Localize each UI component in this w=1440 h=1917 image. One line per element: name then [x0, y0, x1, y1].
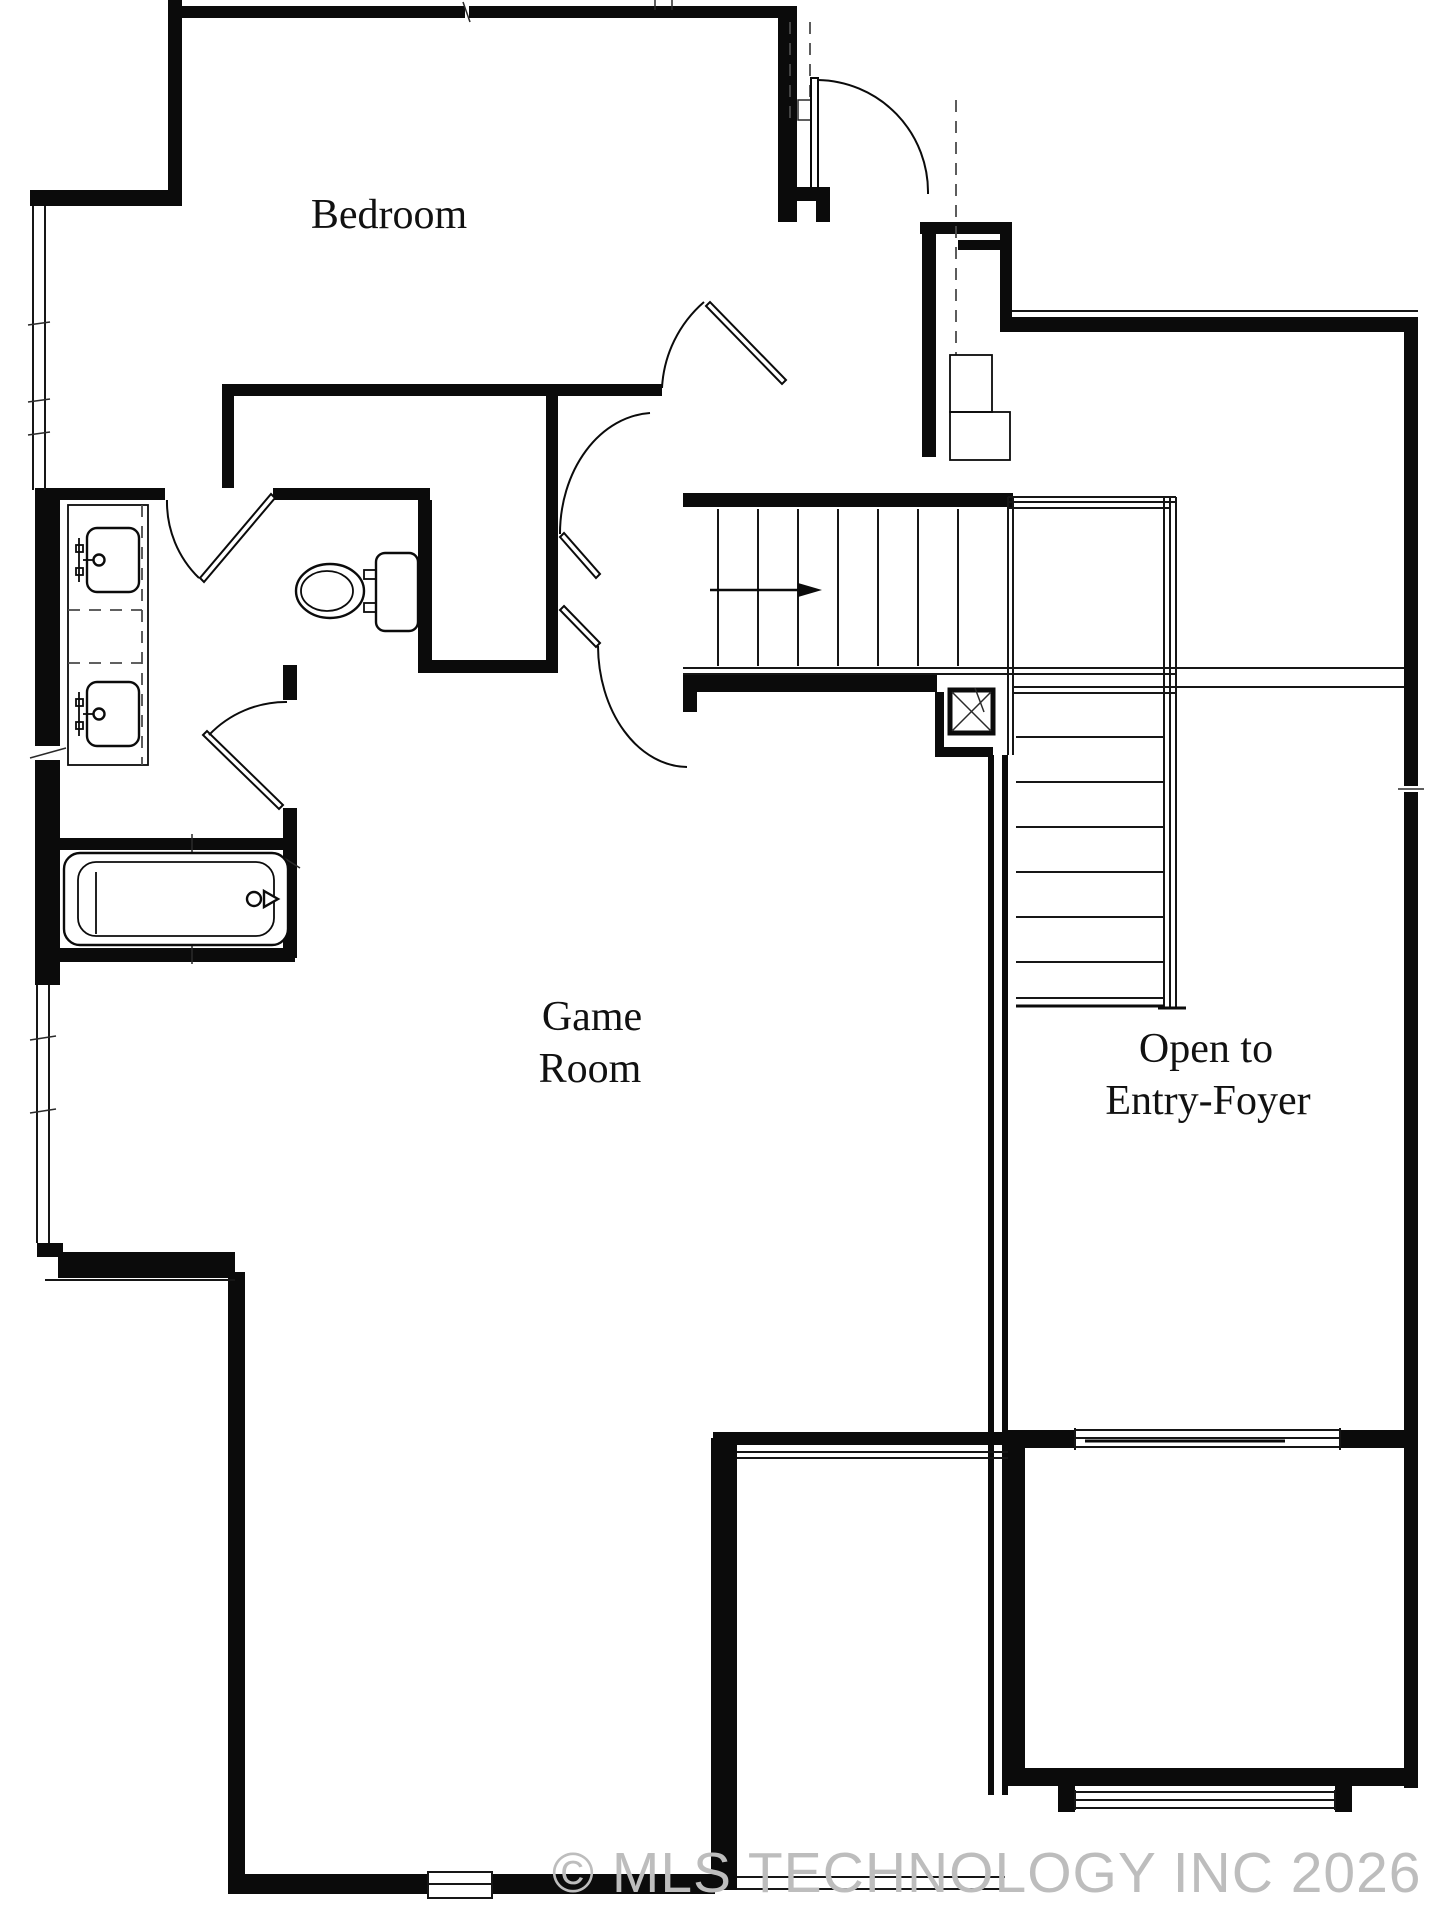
bedroom-label: Bedroom — [311, 192, 468, 238]
window-icon — [428, 1872, 492, 1898]
watermark-text: © MLS TECHNOLOGY INC 2026 — [552, 1841, 1422, 1905]
stairs-icon — [683, 497, 1404, 1008]
double-door-swing-icon — [560, 413, 687, 767]
entry-foyer-label-line2: Entry-Foyer — [1105, 1078, 1310, 1124]
window-icon — [28, 206, 50, 490]
floor-plan-page: Bedroom Game Room Open to Entry-Foyer © … — [0, 0, 1440, 1917]
door-swing-icon — [203, 702, 287, 809]
floor-plan-drawing: Bedroom Game Room Open to Entry-Foyer © … — [0, 0, 1440, 1917]
game-room-label-line1: Game — [542, 994, 642, 1040]
window-icon — [1075, 1428, 1340, 1450]
stair-direction-arrow — [710, 583, 822, 597]
toilet-icon — [296, 553, 418, 631]
newel-post-icon — [950, 688, 993, 733]
sink-icon — [76, 528, 139, 592]
bathtub-icon — [64, 853, 288, 945]
game-room-label-line2: Room — [539, 1046, 642, 1092]
door-swing-icon — [811, 78, 928, 194]
sink-icon — [76, 682, 139, 746]
wall-tick-marks — [30, 0, 1424, 964]
staircase — [683, 497, 1404, 1008]
door-swing-icon — [167, 494, 275, 582]
door-swing-icon — [662, 302, 786, 388]
window-icon — [1075, 1790, 1335, 1810]
walls — [30, 0, 1418, 1894]
window-icon — [30, 985, 56, 1243]
entry-foyer-label-line1: Open to — [1139, 1026, 1273, 1072]
bathroom-fixtures — [64, 505, 418, 945]
